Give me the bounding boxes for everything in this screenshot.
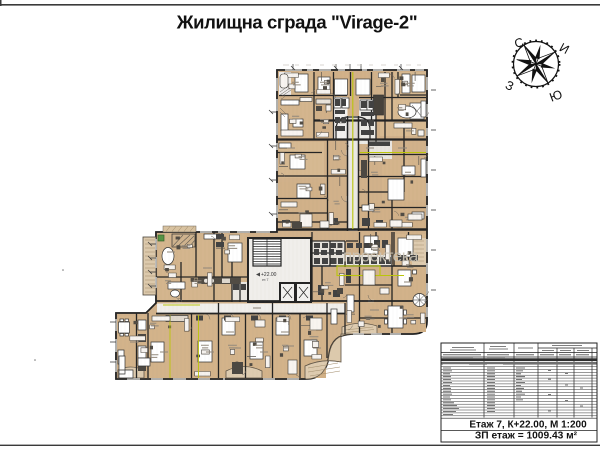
svg-text:ет.7: ет.7 <box>262 278 268 282</box>
svg-text:ЗП етаж = 1009.43 м²: ЗП етаж = 1009.43 м² <box>475 431 578 442</box>
svg-text:проектека: проектека <box>343 247 419 266</box>
svg-text:Етаж 7, К+22.00, М 1:200: Етаж 7, К+22.00, М 1:200 <box>469 419 587 430</box>
svg-text:Жилищна сграда "Virage-2": Жилищна сграда "Virage-2" <box>176 12 417 33</box>
